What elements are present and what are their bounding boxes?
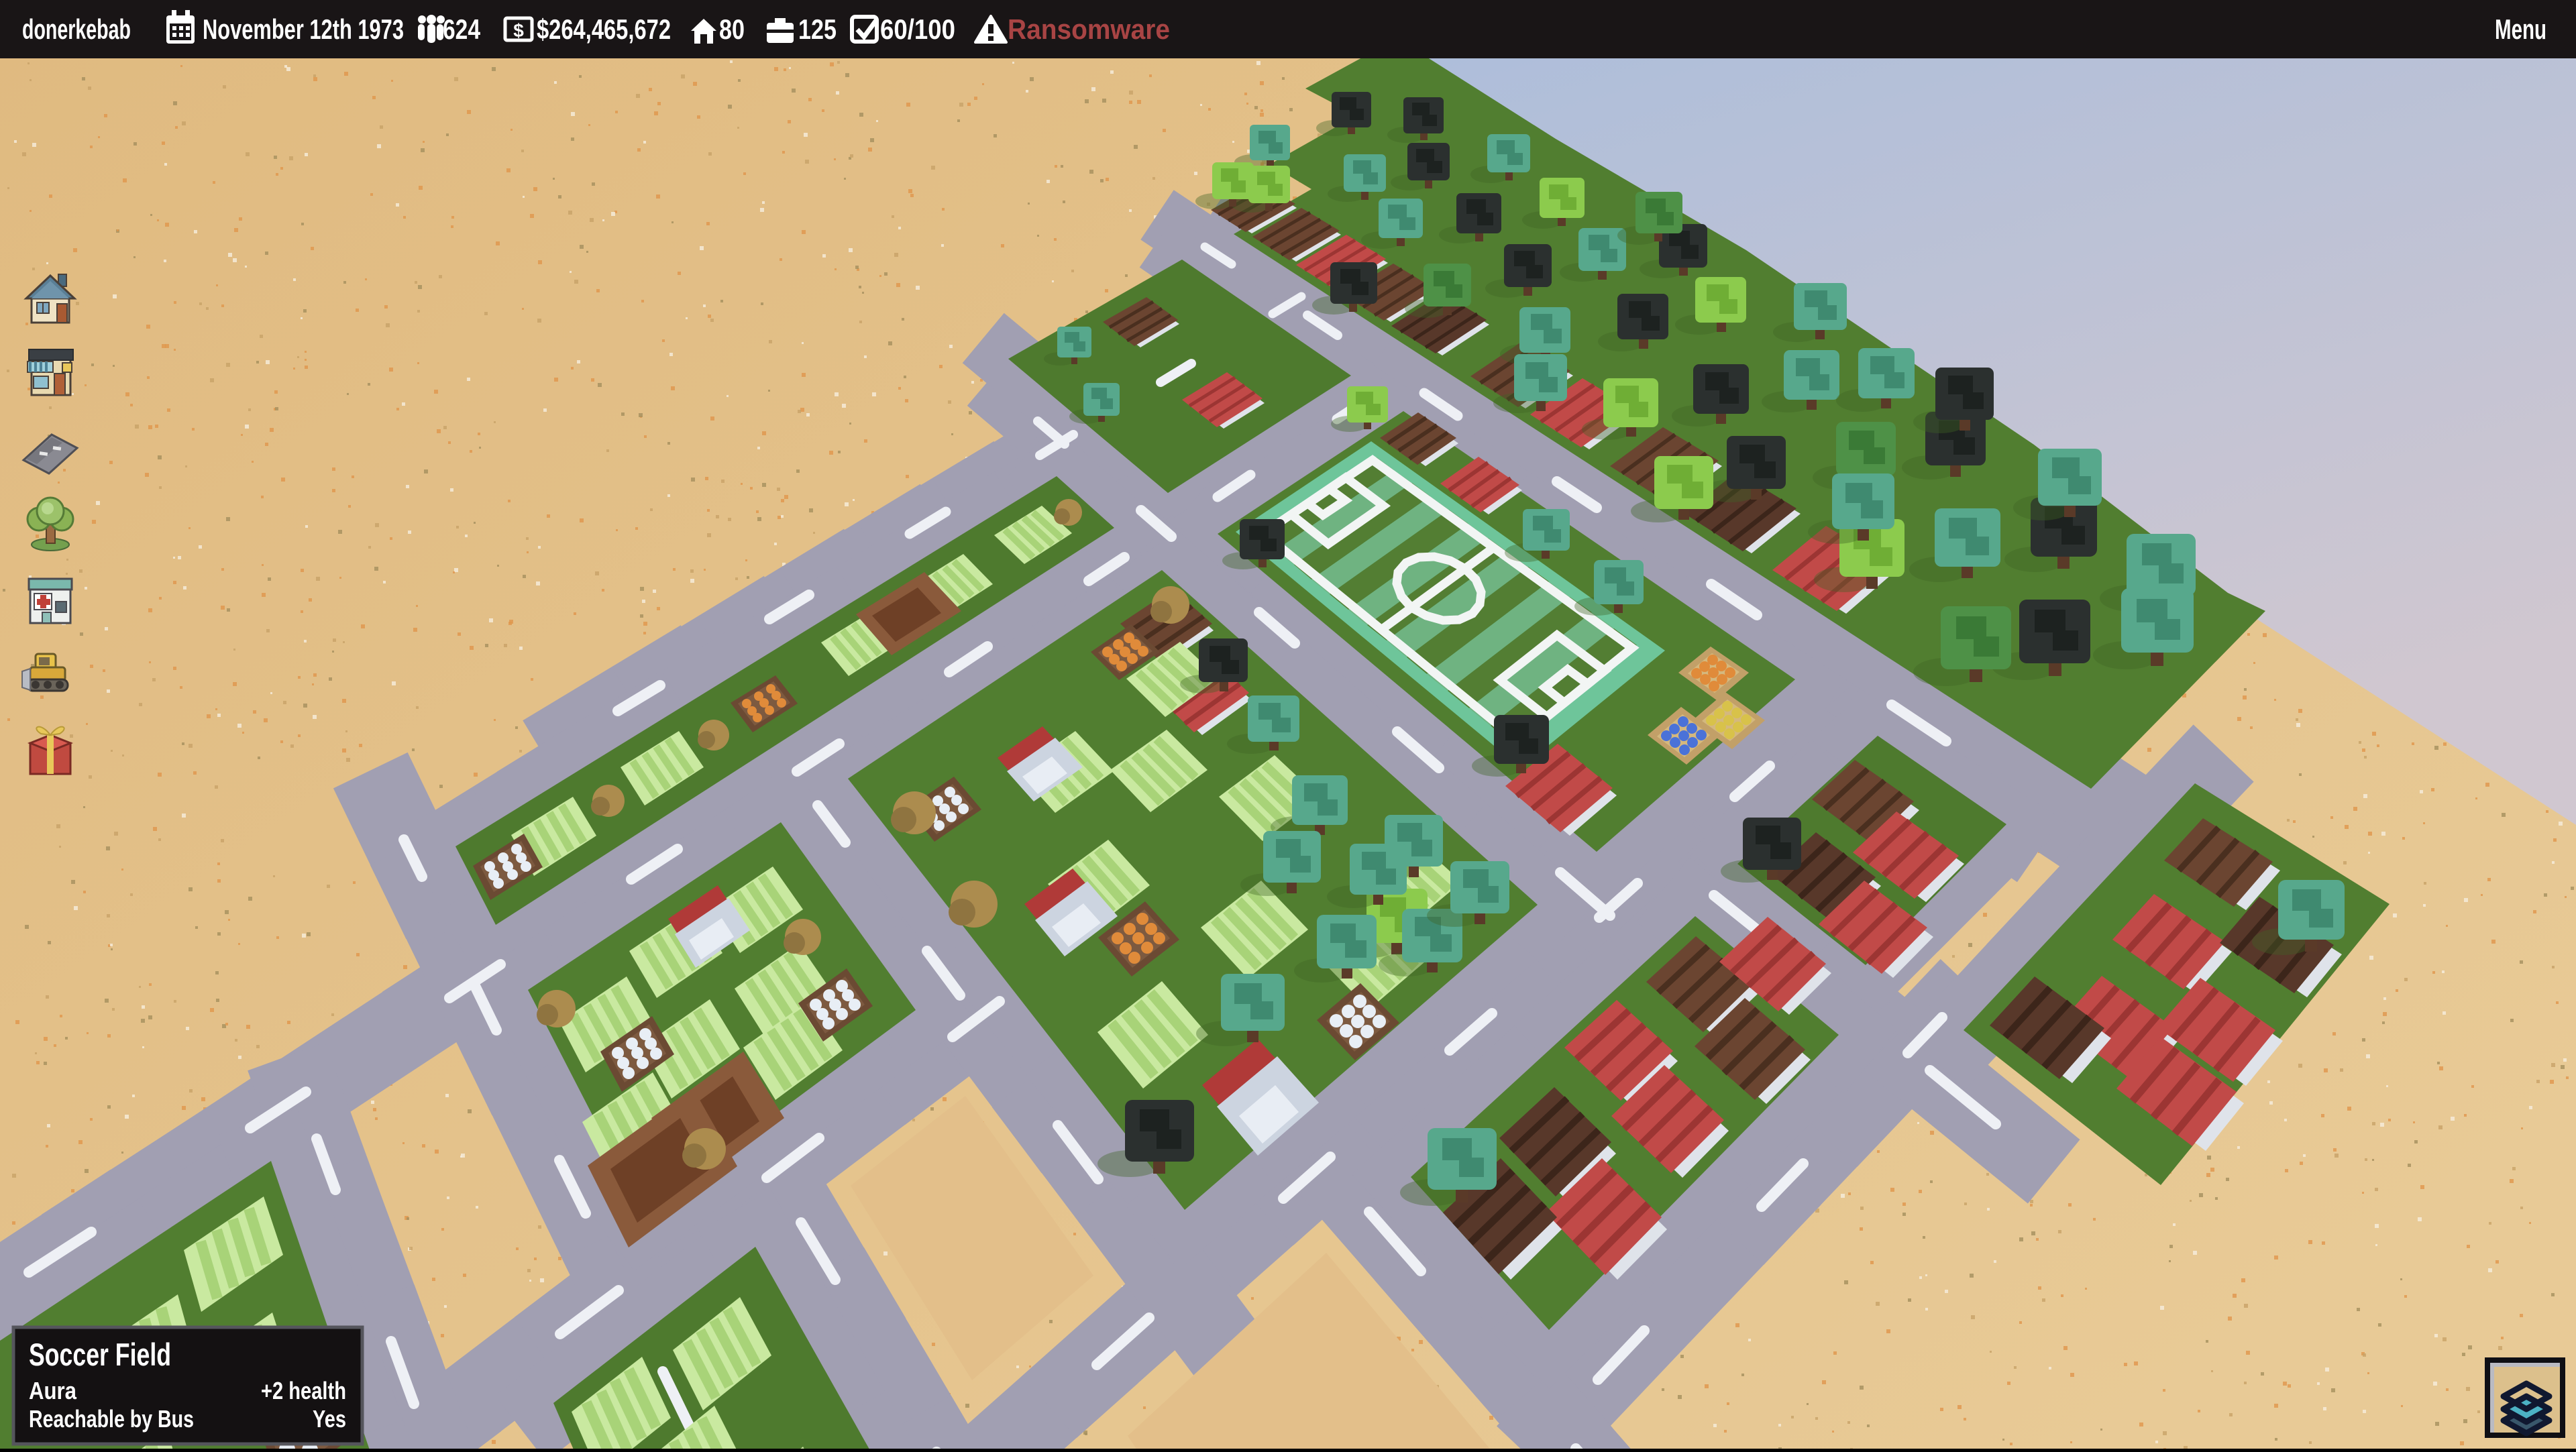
svg-text:Menu: Menu <box>2495 13 2546 45</box>
svg-text:Yes: Yes <box>313 1405 346 1433</box>
svg-text:$264,465,672: $264,465,672 <box>537 13 671 45</box>
svg-text:80: 80 <box>719 13 745 45</box>
svg-text:60/100: 60/100 <box>880 13 955 45</box>
svg-text:125: 125 <box>798 13 837 45</box>
svg-text:624: 624 <box>443 13 481 45</box>
svg-text:Aura: Aura <box>29 1377 77 1404</box>
svg-text:donerkebab: donerkebab <box>22 13 131 45</box>
svg-text:+2 health: +2 health <box>261 1377 346 1404</box>
svg-text:Soccer Field: Soccer Field <box>29 1337 171 1372</box>
svg-text:Ransomware: Ransomware <box>1008 13 1170 45</box>
svg-text:November 12th 1973: November 12th 1973 <box>203 13 404 45</box>
svg-text:$: $ <box>513 20 524 41</box>
svg-text:Reachable by Bus: Reachable by Bus <box>29 1405 194 1433</box>
